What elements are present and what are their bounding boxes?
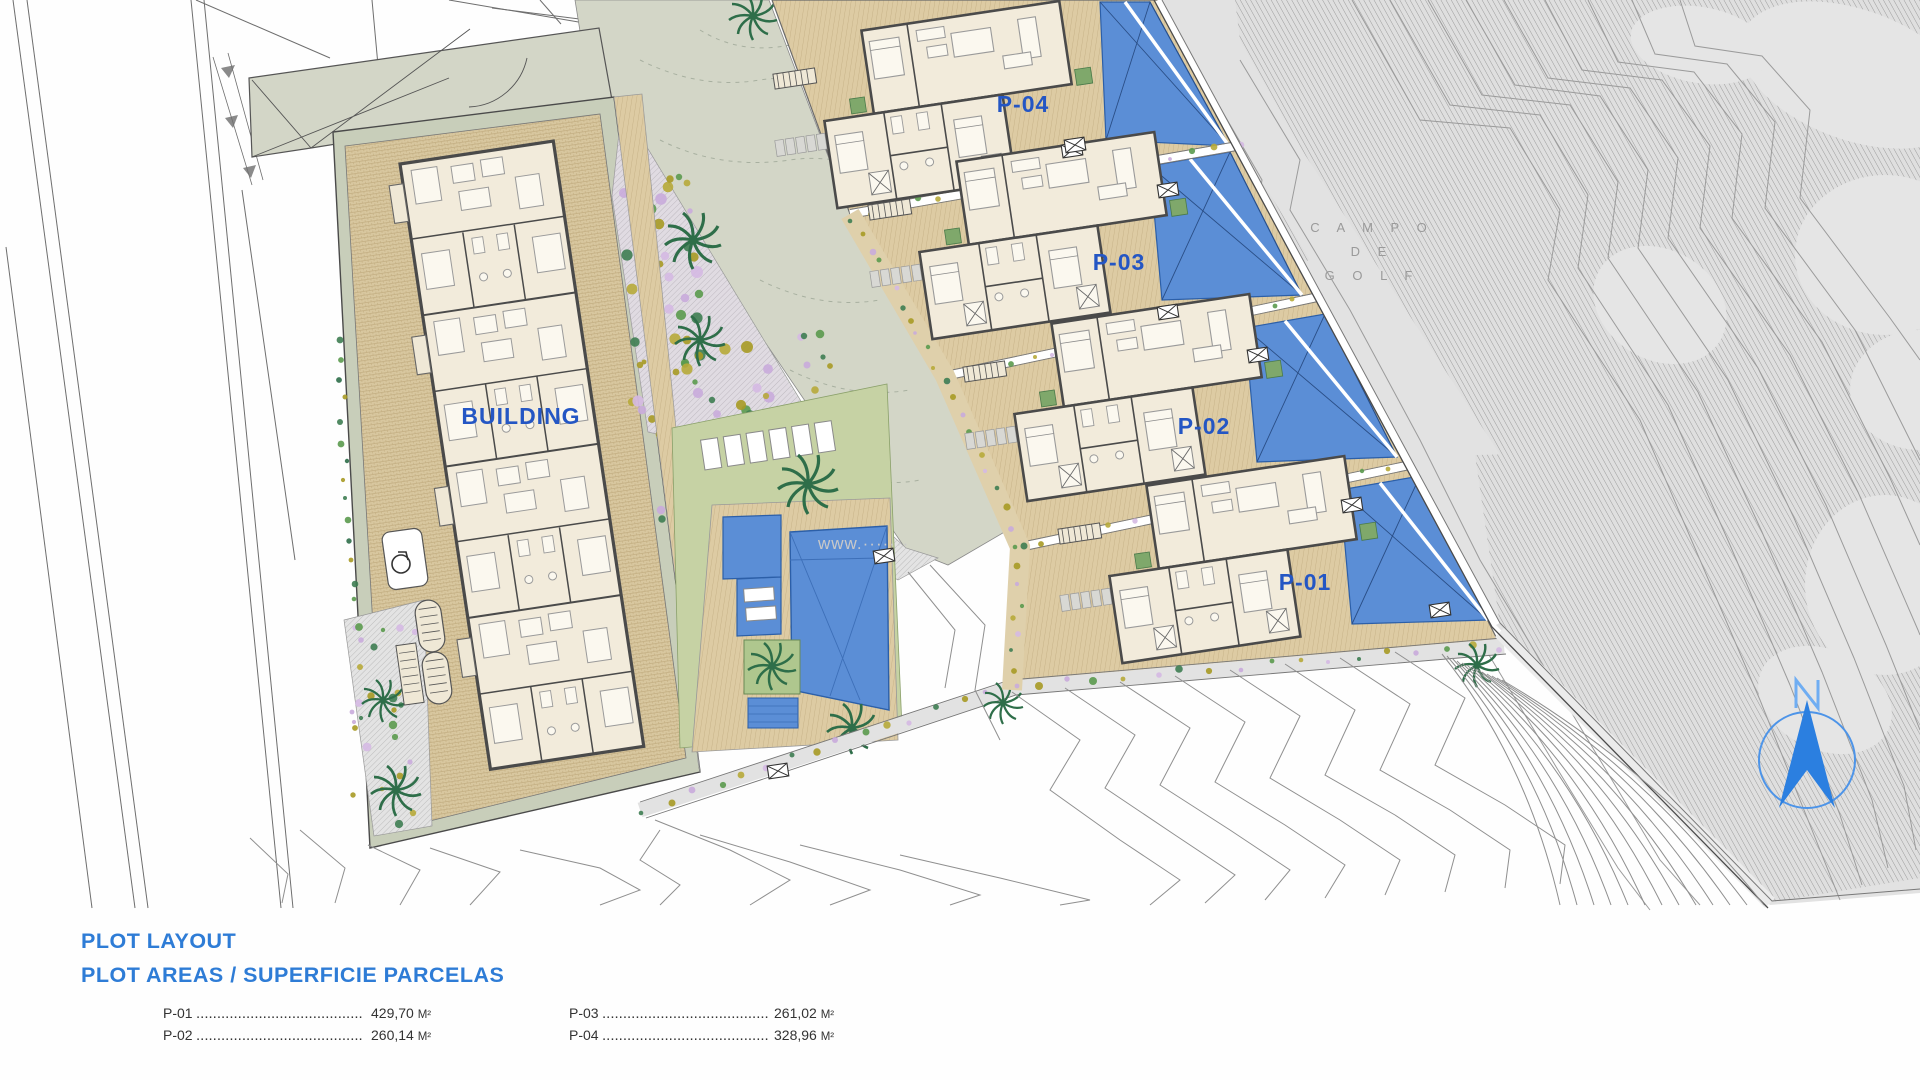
- svg-text:..............................: ........................................: [602, 1005, 769, 1022]
- svg-text:BUILDING: BUILDING: [461, 403, 580, 429]
- svg-text:..............................: ........................................: [196, 1027, 363, 1044]
- svg-text:www.·······: www.·······: [817, 534, 909, 553]
- svg-text:P-04: P-04: [569, 1027, 599, 1043]
- svg-text:P-02: P-02: [163, 1027, 193, 1043]
- svg-text:P-02: P-02: [1178, 413, 1231, 439]
- svg-text:P-04: P-04: [997, 91, 1050, 117]
- svg-text:PLOT AREAS / SUPERFICIE PARCEL: PLOT AREAS / SUPERFICIE PARCELAS: [81, 963, 504, 987]
- svg-text:..............................: ........................................: [196, 1005, 363, 1022]
- svg-text:..............................: ........................................: [602, 1027, 769, 1044]
- svg-text:PLOT LAYOUT: PLOT LAYOUT: [81, 929, 236, 953]
- svg-text:P-01: P-01: [163, 1005, 193, 1021]
- svg-text:P-03: P-03: [1093, 249, 1146, 275]
- svg-text:P-03: P-03: [569, 1005, 599, 1021]
- svg-text:G O L F: G O L F: [1325, 268, 1420, 283]
- svg-text:D E: D E: [1351, 244, 1394, 259]
- svg-text:C A M P O: C A M P O: [1310, 220, 1433, 235]
- svg-text:P-01: P-01: [1279, 569, 1332, 595]
